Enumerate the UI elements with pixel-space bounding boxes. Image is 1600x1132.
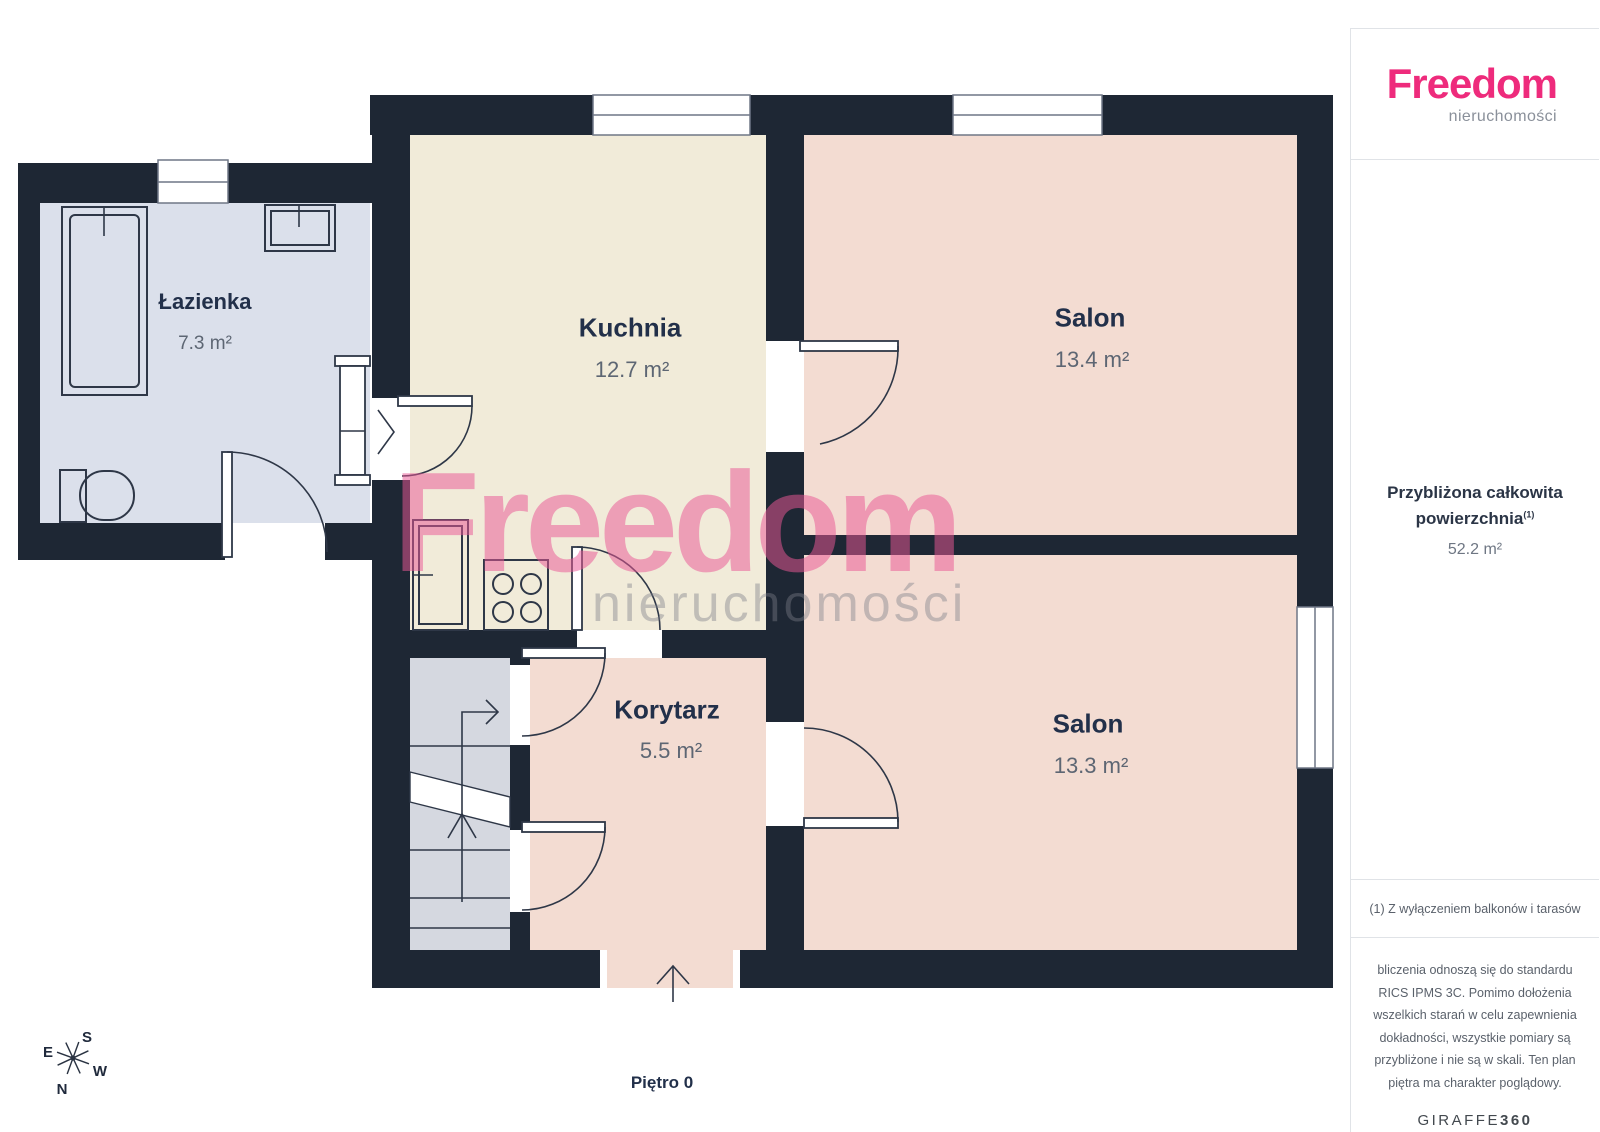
giraffe360-logo-bold: 360	[1500, 1112, 1533, 1129]
footnote-box: (1) Z wyłączeniem balkonów i tarasów	[1351, 880, 1599, 938]
watermark-subtitle: nieruchomości	[592, 578, 966, 630]
disclaimer-box: bliczenia odnoszą się do standardu RICS …	[1351, 938, 1599, 1132]
room-area-living-upper: 13.4 m²	[1055, 347, 1130, 373]
logo-text: Freedom	[1387, 63, 1557, 105]
logo-subtitle: nieruchomości	[1449, 108, 1557, 126]
room-label-corridor: Korytarz	[614, 695, 719, 726]
compass-west: W	[93, 1063, 108, 1080]
compass-icon: S E W N	[43, 1029, 108, 1098]
logo-box: Freedom nieruchomości	[1351, 29, 1599, 160]
room-label-bathroom: Łazienka	[159, 289, 252, 315]
total-area-label-line1: Przybliżona całkowita	[1387, 480, 1563, 506]
total-area-label-line2: powierzchnia(1)	[1416, 506, 1535, 532]
giraffe360-logo: GIRAFFE360	[1364, 1112, 1586, 1129]
room-area-living-lower: 13.3 m²	[1054, 753, 1129, 779]
room-area-corridor: 5.5 m²	[640, 738, 702, 764]
compass-east: E	[43, 1044, 53, 1061]
giraffe360-logo-regular: GIRAFFE	[1417, 1112, 1500, 1129]
total-area-box: Przybliżona całkowita powierzchnia(1) 52…	[1351, 160, 1599, 880]
living-lower-window	[1297, 607, 1333, 768]
info-sidebar: Freedom nieruchomości Przybliżona całkow…	[1350, 28, 1599, 1132]
floor-label: Piętro 0	[631, 1073, 693, 1093]
room-area-bathroom: 7.3 m²	[178, 333, 232, 355]
total-area-value: 52.2 m²	[1448, 541, 1502, 559]
compass-north: N	[57, 1081, 68, 1098]
room-label-living-lower: Salon	[1053, 709, 1124, 740]
room-label-kitchen: Kuchnia	[579, 313, 682, 344]
living-upper-window	[953, 95, 1102, 135]
entrance-threshold	[607, 948, 733, 988]
disclaimer-text: bliczenia odnoszą się do standardu RICS …	[1364, 959, 1586, 1094]
bathroom-vent-window	[158, 160, 228, 203]
room-label-living-upper: Salon	[1055, 303, 1126, 334]
floorplan-page: S E W N Freedom nieruchomości Łazienka 7…	[0, 0, 1600, 1132]
watermark-brand: Freedom	[393, 452, 958, 594]
compass-south: S	[82, 1029, 92, 1046]
footnote-text: (1) Z wyłączeniem balkonów i tarasów	[1369, 902, 1580, 916]
kitchen-window	[593, 95, 750, 135]
total-area-label-text: powierzchnia	[1416, 509, 1524, 528]
room-area-kitchen: 12.7 m²	[595, 357, 670, 383]
total-area-footnote-ref: (1)	[1523, 509, 1534, 519]
